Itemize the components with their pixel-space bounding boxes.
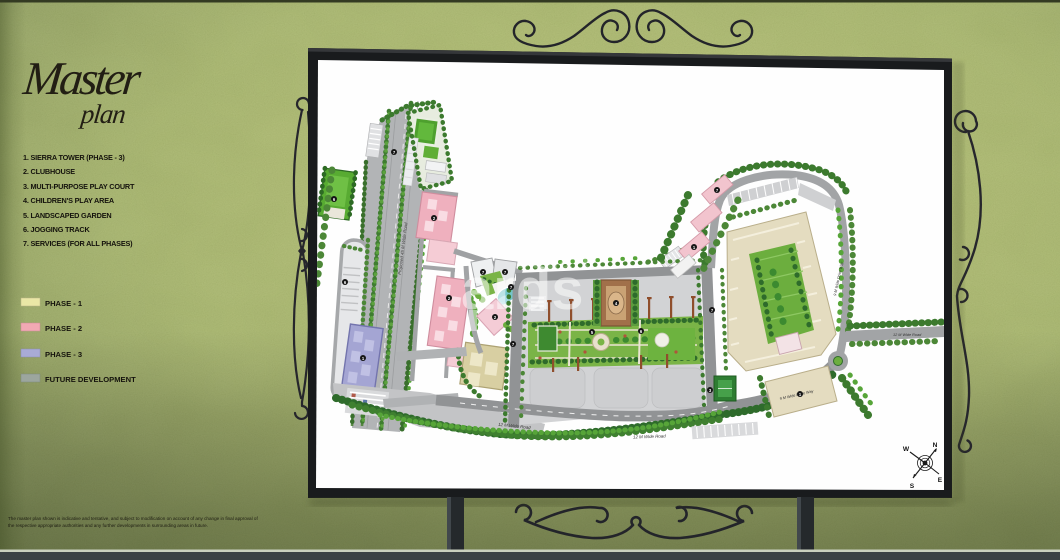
svg-text:E: E	[938, 477, 943, 484]
svg-text:PHASE - 2: PHASE - 2	[45, 324, 82, 333]
svg-text:7. SERVICES (FOR ALL PHASES): 7. SERVICES (FOR ALL PHASES)	[23, 239, 133, 248]
svg-text:6. JOGGING TRACK: 6. JOGGING TRACK	[23, 225, 90, 234]
svg-text:3. MULTI-PURPOSE PLAY COURT: 3. MULTI-PURPOSE PLAY COURT	[23, 182, 135, 191]
svg-text:4. CHILDREN'S PLAY AREA: 4. CHILDREN'S PLAY AREA	[23, 196, 115, 205]
svg-text:W: W	[903, 446, 910, 453]
svg-text:plan: plan	[77, 99, 127, 129]
svg-text:Master: Master	[20, 53, 144, 105]
svg-text:N: N	[933, 442, 938, 449]
svg-text:2. CLUBHOUSE: 2. CLUBHOUSE	[23, 167, 75, 176]
svg-text:5. LANDSCAPED GARDEN: 5. LANDSCAPED GARDEN	[23, 211, 111, 220]
svg-text:1. SIERRA TOWER (PHASE - 3): 1. SIERRA TOWER (PHASE - 3)	[23, 153, 125, 162]
svg-text:S: S	[910, 483, 915, 490]
svg-text:The master plan shown is indic: The master plan shown is indicative and …	[8, 516, 258, 521]
svg-text:ards: ards	[461, 257, 584, 322]
svg-text:PHASE - 3: PHASE - 3	[45, 350, 82, 359]
svg-text:PHASE - 1: PHASE - 1	[45, 299, 83, 308]
svg-text:FUTURE DEVELOPMENT: FUTURE DEVELOPMENT	[45, 375, 136, 384]
svg-text:the respective appropriate aut: the respective appropriate authorities a…	[8, 523, 208, 528]
svg-text:12 M Wide Road: 12 M Wide Road	[893, 333, 922, 337]
